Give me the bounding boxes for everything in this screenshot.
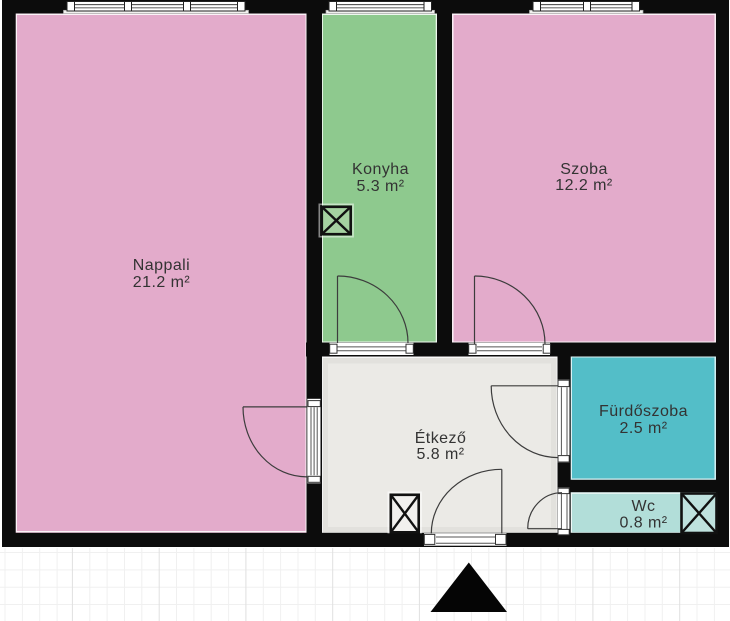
svg-text:Konyha: Konyha xyxy=(352,161,409,178)
svg-text:Nappali: Nappali xyxy=(133,257,190,274)
svg-text:Fürdőszoba: Fürdőszoba xyxy=(599,403,688,420)
svg-text:21.2 m²: 21.2 m² xyxy=(133,274,191,291)
svg-text:2.5 m²: 2.5 m² xyxy=(619,420,667,437)
svg-text:Wc: Wc xyxy=(631,498,655,515)
svg-text:5.8 m²: 5.8 m² xyxy=(416,446,464,463)
svg-text:Szoba: Szoba xyxy=(560,161,608,178)
svg-text:5.3 m²: 5.3 m² xyxy=(356,178,404,195)
svg-text:Étkező: Étkező xyxy=(415,428,467,447)
svg-text:12.2 m²: 12.2 m² xyxy=(555,177,613,194)
svg-text:0.8 m²: 0.8 m² xyxy=(619,515,667,532)
